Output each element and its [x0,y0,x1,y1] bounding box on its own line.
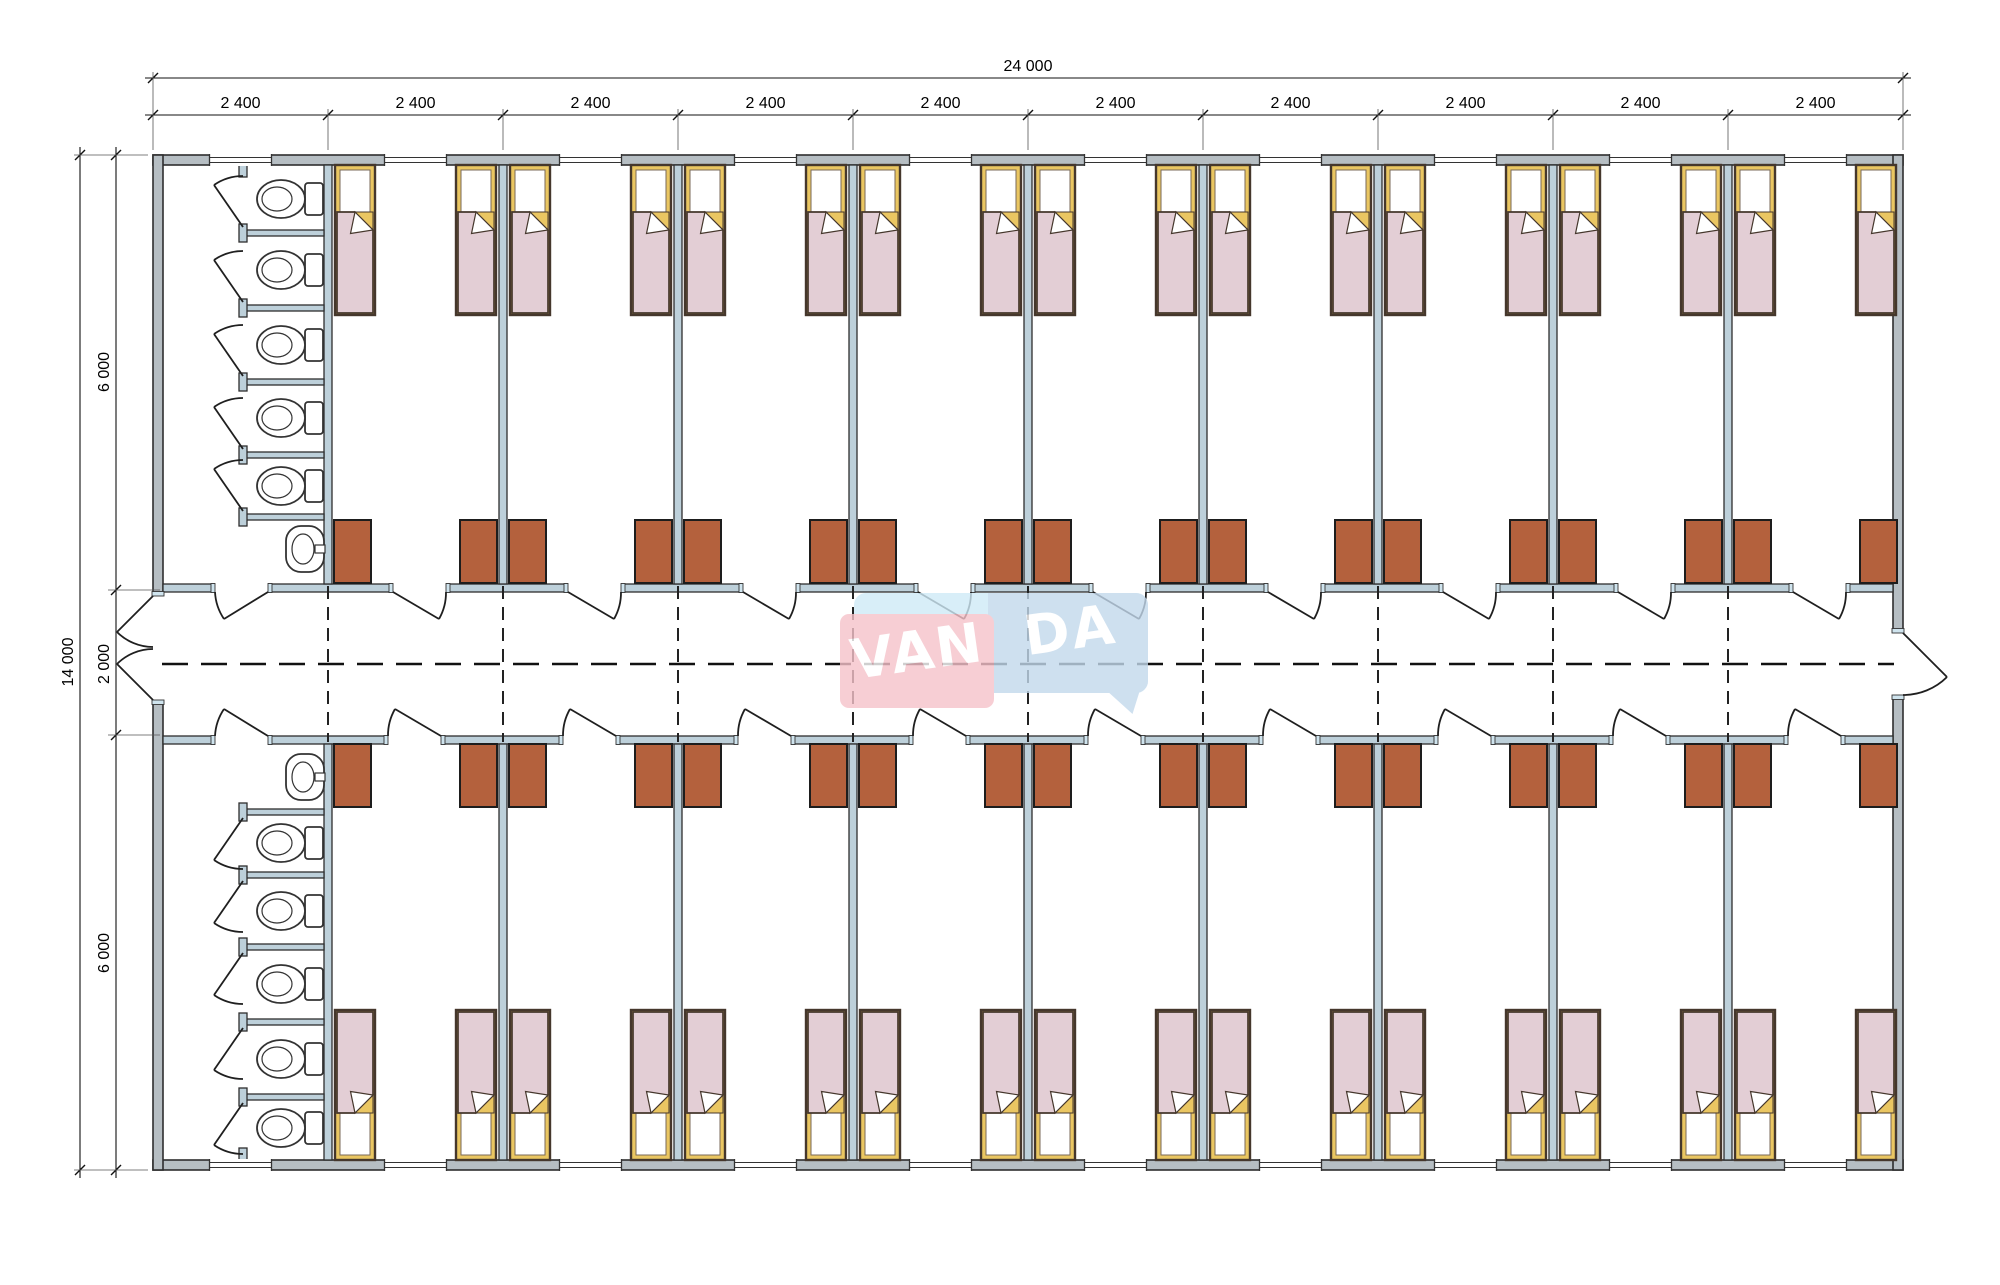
wardrobe [1384,520,1421,583]
door-opening [563,735,616,746]
wardrobe [859,520,896,583]
bed-pillow-area [986,1113,1016,1155]
bed [510,165,550,315]
toilet-bowl [257,892,305,930]
door-opening [1443,583,1496,594]
bed [1035,1010,1075,1160]
door-leaf [1268,592,1314,619]
window-opening [385,1159,447,1171]
dim-label-bay: 2 400 [920,95,960,112]
door-leaf [1793,592,1839,619]
window-opening [1435,1159,1497,1171]
wardrobe [1034,744,1071,807]
wc-stall-partition [241,514,324,520]
wall-room-divider-bottom [499,744,507,1160]
door-opening [215,583,268,594]
stall-door-leaf [214,185,243,227]
wardrobe [810,744,847,807]
stall-door-swing [214,995,243,1004]
wardrobe [334,744,371,807]
toilet [257,467,323,505]
door-jamb [734,736,738,745]
stall-door-leaf [214,260,243,302]
bed [1210,1010,1250,1160]
door-jamb [268,736,272,745]
stall-door-swing [214,1070,243,1079]
wall-room-divider-top [674,165,682,584]
stall-door-leaf [214,334,243,376]
door-jamb [616,736,620,745]
sink-tap [315,773,325,781]
door-jamb [621,584,625,593]
wardrobe [1160,744,1197,807]
door-opening [1263,735,1316,746]
bed-pillow-area [1040,170,1070,212]
wall-room-divider-bottom [674,744,682,1160]
bed [1856,1010,1896,1160]
door-opening [393,583,446,594]
stall-door-swing [214,325,243,334]
bed-pillow-area [1861,1113,1891,1155]
bed [1506,165,1546,315]
door-jamb [1141,736,1145,745]
toilet [257,399,323,437]
toilet-tank [305,1043,323,1075]
wc-stall-partition [241,230,324,236]
wall-room-divider-bottom [1024,744,1032,1160]
bed [1331,1010,1371,1160]
wardrobe [859,744,896,807]
door-swing [1438,709,1445,736]
stall-door-leaf [214,881,243,923]
entrance-opening-west [152,596,165,700]
door-opening [388,735,441,746]
toilet-bowl [257,467,305,505]
wardrobe [460,520,497,583]
window-opening [385,154,447,166]
bed [1035,165,1075,315]
door-swing [215,592,224,619]
toilet-bowl [257,326,305,364]
stall-door-swing [214,923,243,932]
wardrobe [1860,744,1897,807]
door-swing [614,592,621,619]
wall-room-divider-top [849,165,857,584]
bed-pillow-area [1565,1113,1595,1155]
door-leaf [224,709,268,736]
wardrobe [684,744,721,807]
door-opening [568,583,621,594]
door-jamb [1491,736,1495,745]
toilet-tank [305,895,323,927]
door-opening [1793,583,1846,594]
door-jamb [389,584,393,593]
door-jamb [791,736,795,745]
bed [456,1010,496,1160]
toilet [257,824,323,862]
dim-label-bay: 2 400 [745,95,785,112]
wardrobe [1510,744,1547,807]
window-opening [1085,1159,1147,1171]
bed-pillow-area [1390,1113,1420,1155]
bed [1735,165,1775,315]
wc-stall-partition [241,305,324,311]
stall-door-leaf [214,407,243,449]
wall-room-divider-bottom [324,744,332,1160]
door-jamb [1784,736,1788,745]
wardrobe [509,744,546,807]
bed-pillow-area [1740,170,1770,212]
wardrobe [1685,744,1722,807]
dim-label-bay: 2 400 [570,95,610,112]
door-swing [1263,709,1270,736]
wardrobe [1510,520,1547,583]
wc-stall-partition [241,452,324,458]
bed [1560,1010,1600,1160]
wall-room-divider-top [1199,165,1207,584]
window-opening [1260,1159,1322,1171]
bed-pillow-area [1215,170,1245,212]
bed-pillow-area [811,170,841,212]
bed-pillow-area [1040,1113,1070,1155]
door-opening [1268,583,1321,594]
wardrobe [985,520,1022,583]
bed-pillow-area [461,1113,491,1155]
window-opening [910,1159,972,1171]
wardrobe [1335,744,1372,807]
wc-stall-partition [241,1019,324,1025]
bed-pillow-area [1336,1113,1366,1155]
dim-label-bay: 2 400 [220,95,260,112]
bed-pillow-area [986,170,1016,212]
door-jamb [1666,736,1670,745]
toilet-tank [305,968,323,1000]
bed [1856,165,1896,315]
door-jamb [1614,584,1618,593]
window-opening [1610,154,1672,166]
bed [981,165,1021,315]
bed-pillow-area [1161,170,1191,212]
dim-label-bay: 2 400 [1270,95,1310,112]
window-opening [1260,154,1322,166]
window-opening [735,1159,797,1171]
dim-label-corridor: 2 000 [96,644,113,684]
door-leaf [745,709,791,736]
wall-room-divider-bottom [1549,744,1557,1160]
wc-stall-partition [241,1094,324,1100]
door-leaf [570,709,616,736]
door-jamb [1439,584,1443,593]
dim-label-total-height: 14 000 [60,637,77,686]
door-leaf [393,592,439,619]
sink-tap [315,545,325,553]
bed-pillow-area [1686,170,1716,212]
door-jamb [441,736,445,745]
door-leaf [1443,592,1489,619]
window-opening [1785,154,1847,166]
bed-pillow-area [1740,1113,1770,1155]
entrance-door-swing [1903,677,1947,695]
door-jamb [268,584,272,593]
door-jamb [1841,736,1845,745]
door-jamb [1671,584,1675,593]
wc-stall-partition [241,379,324,385]
toilet-tank [305,329,323,361]
door-jamb [796,584,800,593]
bed [1735,1010,1775,1160]
door-swing [1839,592,1846,619]
bed-pillow-area [515,170,545,212]
door-jamb [1084,736,1088,745]
bed-pillow-area [1215,1113,1245,1155]
dim-label-bay: 2 400 [1095,95,1135,112]
bed [1681,1010,1721,1160]
door-leaf [1618,592,1664,619]
wall-room-divider-top [1024,165,1032,584]
door-swing [1788,709,1795,736]
stall-door-leaf [214,1028,243,1070]
door-opening [1788,735,1841,746]
bed [1331,165,1371,315]
toilet-bowl [257,1040,305,1078]
wardrobe [1034,520,1071,583]
door-jamb [909,736,913,745]
stall-door-swing [214,398,243,407]
entrance-door-leaf [1903,633,1947,677]
entrance-door-swing [117,649,153,664]
stall-door-leaf [214,818,243,860]
toilet-tank [305,254,323,286]
door-jamb [1846,584,1850,593]
toilet-bowl [257,251,305,289]
wall-room-divider-bottom [1199,744,1207,1160]
door-opening [913,735,966,746]
toilet-bowl [257,399,305,437]
window-opening [735,154,797,166]
bed [335,165,375,315]
bed-pillow-area [1511,1113,1541,1155]
door-jamb [446,584,450,593]
door-swing [738,709,745,736]
door-swing [1489,592,1496,619]
bed [1385,165,1425,315]
wc-stall-partition [241,872,324,878]
toilet [257,1109,323,1147]
window-opening [1085,154,1147,166]
toilet [257,251,323,289]
toilet-tank [305,470,323,502]
dim-label-depth-bottom: 6 000 [96,933,113,973]
bed-pillow-area [690,1113,720,1155]
bed [456,165,496,315]
dim-label-bay: 2 400 [1795,95,1835,112]
window-opening [1610,1159,1672,1171]
stall-door-leaf [214,953,243,995]
door-opening [1613,735,1666,746]
door-jamb [1789,584,1793,593]
wardrobe [1209,744,1246,807]
bed-pillow-area [636,1113,666,1155]
wardrobe [1559,744,1596,807]
wardrobe [635,520,672,583]
door-swing [789,592,796,619]
wardrobe [1734,744,1771,807]
wall-room-divider-top [1549,165,1557,584]
door-jamb [1321,584,1325,593]
wardrobe [1860,520,1897,583]
window-opening [560,1159,622,1171]
stall-door-swing [214,251,243,260]
bed [860,1010,900,1160]
bed-pillow-area [1861,170,1891,212]
bed [631,165,671,315]
bed-pillow-area [865,170,895,212]
bed-pillow-area [1565,170,1595,212]
wardrobe [684,520,721,583]
bed-pillow-area [340,1113,370,1155]
toilet-bowl [257,180,305,218]
bed [1156,1010,1196,1160]
bed-pillow-area [690,170,720,212]
bed [685,1010,725,1160]
dim-label-bay: 2 400 [1445,95,1485,112]
door-leaf [395,709,441,736]
door-jamb [1434,736,1438,745]
wall-room-divider-bottom [1374,744,1382,1160]
door-jamb [966,736,970,745]
bed-pillow-area [636,170,666,212]
toilet [257,326,323,364]
door-jamb [1892,629,1904,634]
toilet [257,1040,323,1078]
stall-door-leaf [214,469,243,511]
door-opening [743,583,796,594]
watermark-bubble-tail [1106,690,1140,714]
wardrobe [1685,520,1722,583]
bed [1210,165,1250,315]
door-opening [1088,735,1141,746]
door-opening [738,735,791,746]
door-leaf [1795,709,1841,736]
watermark-vanda: VAN DA [838,586,1168,722]
toilet [257,965,323,1003]
bed [806,165,846,315]
sink [286,526,325,572]
bed-pillow-area [1511,170,1541,212]
toilet-tank [305,1112,323,1144]
toilet [257,892,323,930]
toilet [257,180,323,218]
toilet-tank [305,183,323,215]
bed-pillow-area [1336,170,1366,212]
toilet-bowl [257,824,305,862]
dim-label-bay: 2 400 [1620,95,1660,112]
bed-pillow-area [865,1113,895,1155]
window-opening [910,154,972,166]
entrance-door-swing [117,632,153,647]
toilet-bowl [257,965,305,1003]
window-opening [210,1159,272,1171]
wardrobe [1209,520,1246,583]
door-leaf [568,592,614,619]
door-swing [1613,709,1620,736]
wardrobe [985,744,1022,807]
window-opening [1785,1159,1847,1171]
wardrobe [1335,520,1372,583]
wall-room-divider-top [324,165,332,584]
bed-pillow-area [515,1113,545,1155]
door-jamb [1264,584,1268,593]
door-jamb [1259,736,1263,745]
bed-pillow-area [340,170,370,212]
entrance-door-leaf [117,596,153,632]
wall-room-divider-bottom [1724,744,1732,1160]
sink [286,754,325,800]
door-jamb [384,736,388,745]
door-leaf [743,592,789,619]
door-opening [1618,583,1671,594]
wc-stall-partition [241,809,324,815]
wall-room-divider-top [1374,165,1382,584]
wardrobe [460,744,497,807]
door-jamb [211,584,215,593]
wardrobe [1559,520,1596,583]
wardrobe [635,744,672,807]
door-jamb [211,736,215,745]
door-jamb [1316,736,1320,745]
door-leaf [224,592,268,619]
bed [1156,165,1196,315]
wall-room-divider-top [499,165,507,584]
door-jamb [559,736,563,745]
bed [860,165,900,315]
toilet-tank [305,827,323,859]
bed [335,1010,375,1160]
bed-pillow-area [1390,170,1420,212]
wardrobe [334,520,371,583]
bed-pillow-area [1161,1113,1191,1155]
bed-pillow-area [1686,1113,1716,1155]
window-opening [560,154,622,166]
door-swing [1314,592,1321,619]
door-jamb [1892,695,1904,700]
door-leaf [1445,709,1491,736]
door-jamb [739,584,743,593]
entrance-door-leaf [117,664,153,700]
door-leaf [1270,709,1316,736]
door-jamb [564,584,568,593]
toilet-tank [305,402,323,434]
wc-stall-partition [241,944,324,950]
dim-label-depth-top: 6 000 [96,352,113,392]
door-opening [215,735,268,746]
bed [1506,1010,1546,1160]
wardrobe [1734,520,1771,583]
door-jamb [1609,736,1613,745]
dim-label-total-width: 24 000 [1004,58,1053,75]
door-leaf [1620,709,1666,736]
bed [981,1010,1021,1160]
door-jamb [152,700,164,705]
door-opening [1438,735,1491,746]
window-opening [1435,154,1497,166]
floor-plan-canvas: 24 0002 4002 4002 4002 4002 4002 4002 40… [0,0,2000,1285]
bed [1560,165,1600,315]
wardrobe [1160,520,1197,583]
bed-pillow-area [461,170,491,212]
bed [1385,1010,1425,1160]
wall-room-divider-top [1724,165,1732,584]
